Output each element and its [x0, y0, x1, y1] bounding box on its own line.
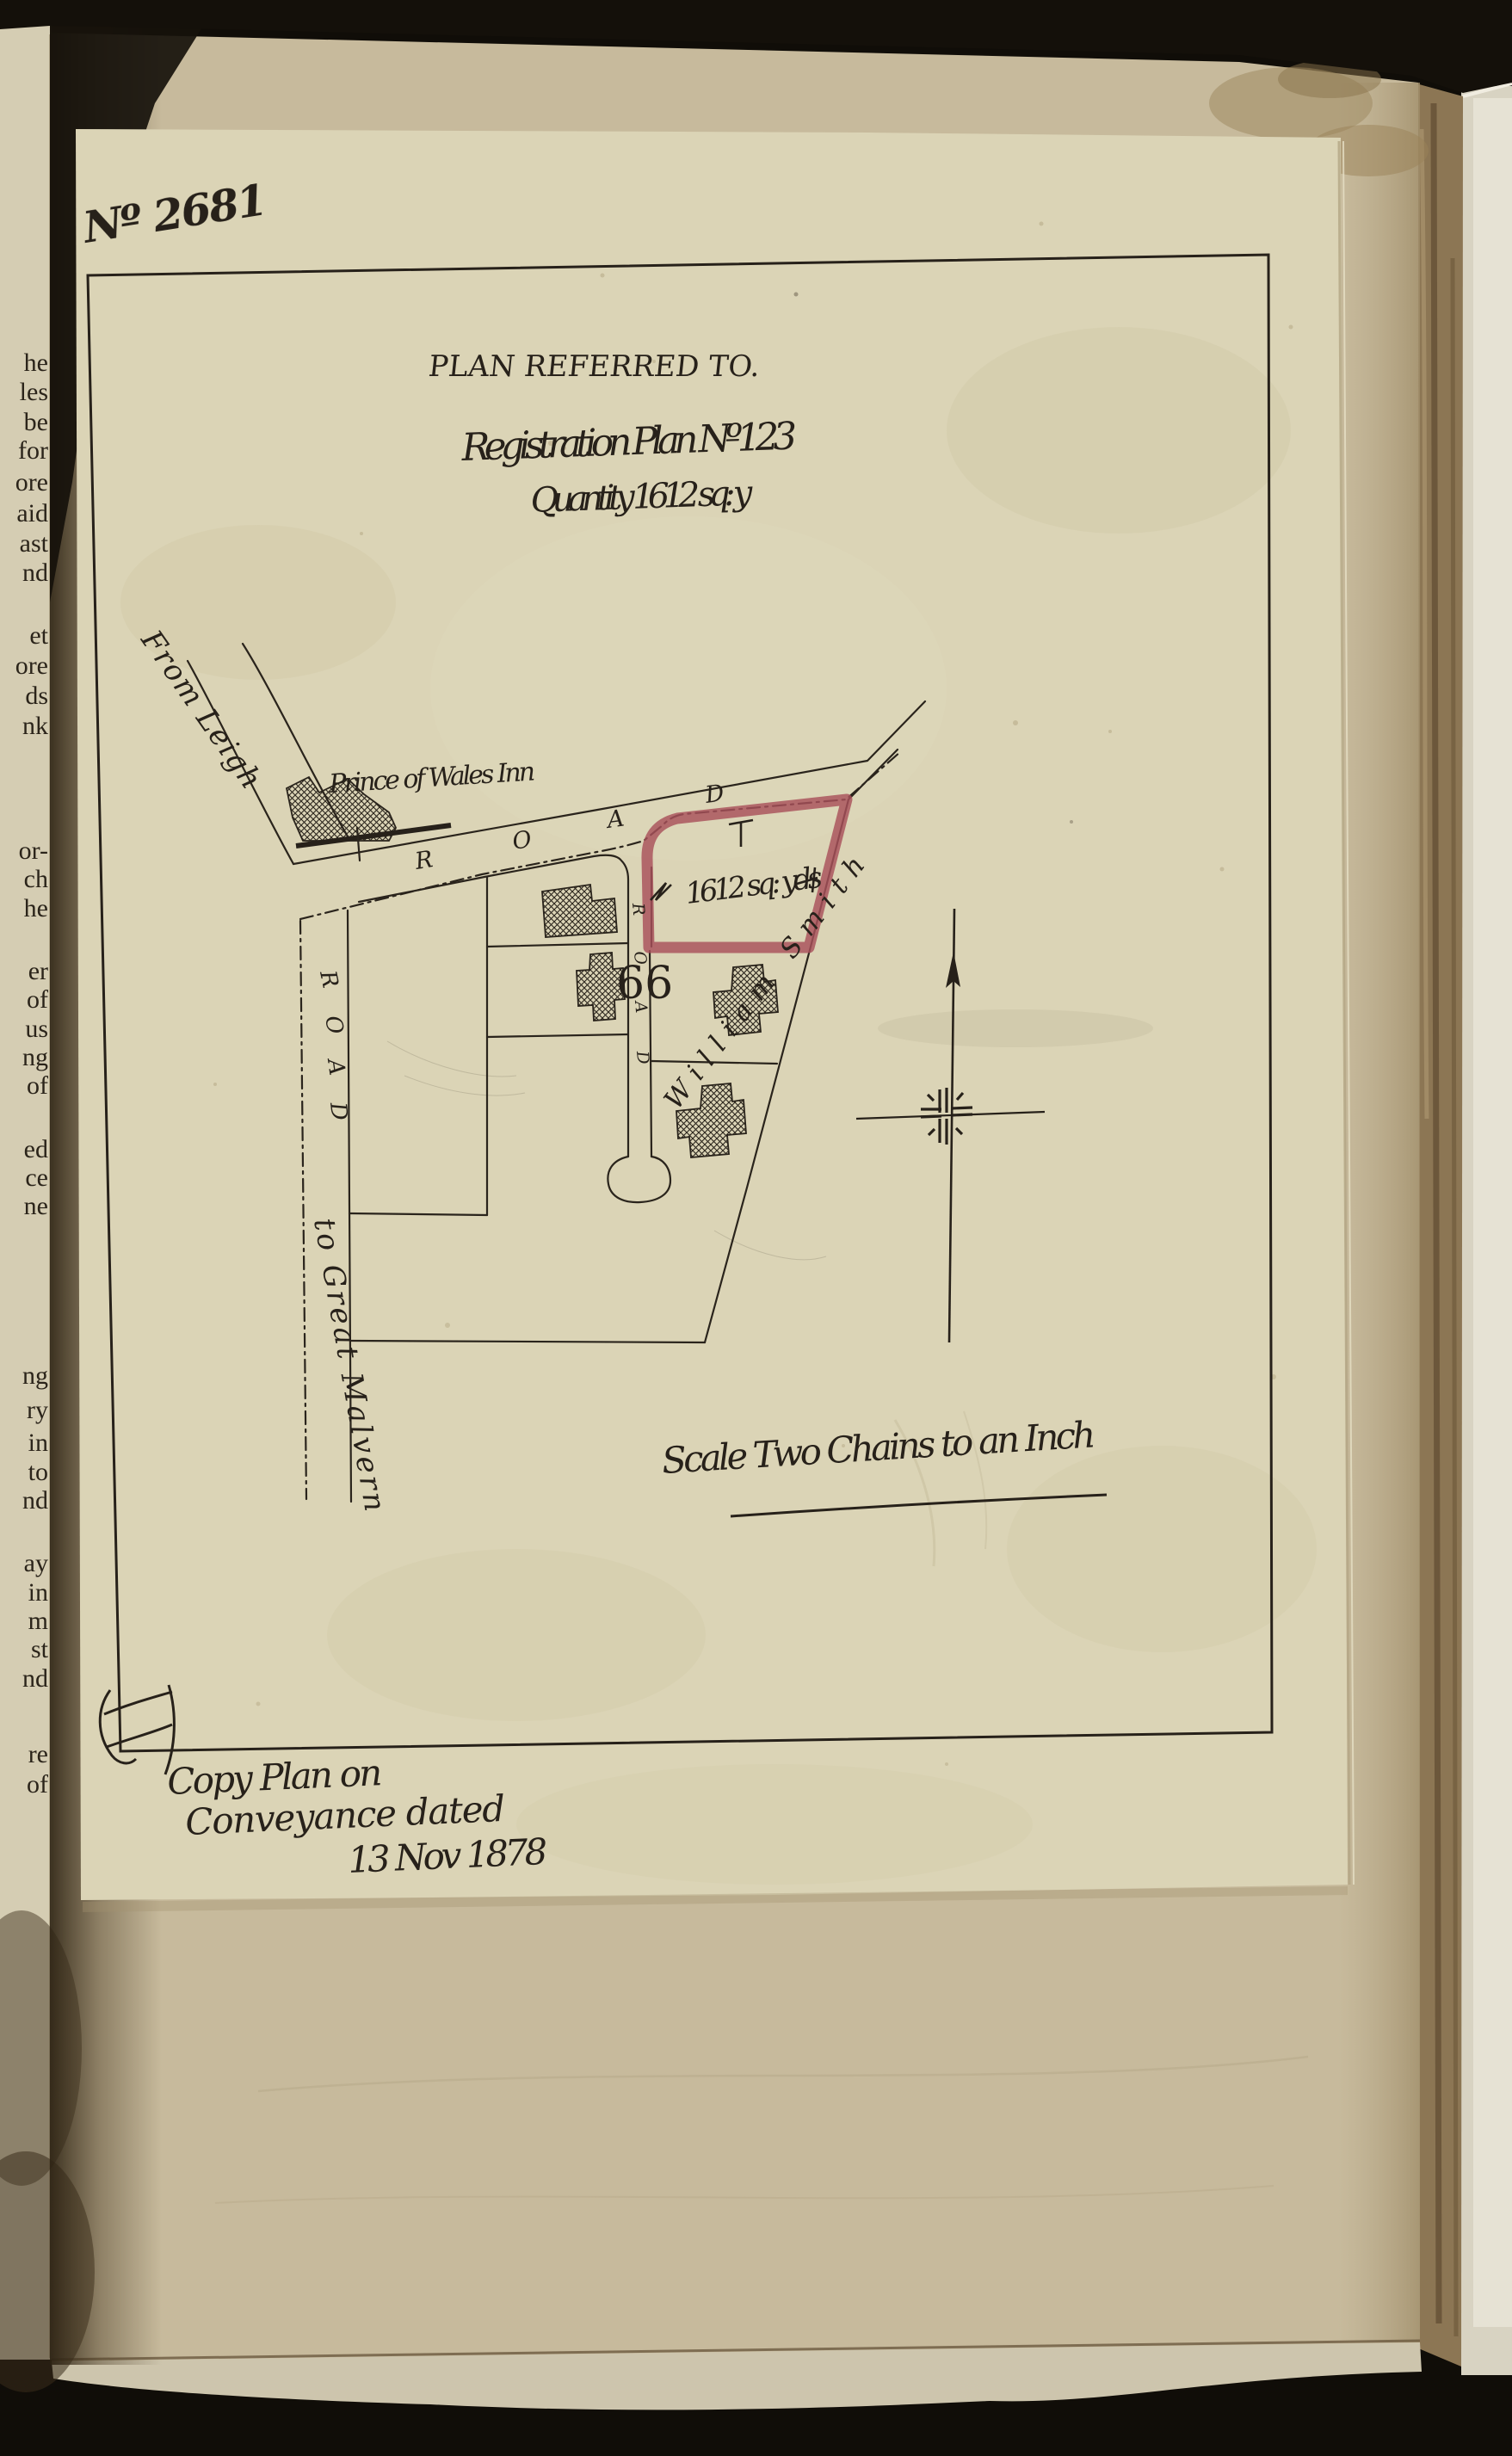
page-edge-text-fragment: of: [0, 1772, 48, 1798]
page-edge-text-fragment: of: [0, 1073, 48, 1099]
page-edge-text-fragment: ds: [0, 683, 48, 709]
page-edge-text-fragment: ry: [0, 1398, 48, 1423]
page-edge-text-fragment: m: [0, 1608, 48, 1634]
road-letter: D: [703, 780, 726, 809]
adjacent-page-text-column: helesbefororeaidastndetoredsnkor-chheero…: [0, 0, 50, 2456]
page-edge-text-fragment: be: [0, 410, 48, 435]
page-edge-text-fragment: ay: [0, 1551, 48, 1577]
page-edge-text-fragment: ce: [0, 1165, 48, 1191]
page-edge-text-fragment: nd: [0, 560, 48, 586]
page-edge-text-fragment: les: [0, 380, 48, 405]
page-edge-text-fragment: nk: [0, 713, 48, 739]
page-edge-text-fragment: of: [0, 987, 48, 1013]
page-edge-text-fragment: aid: [0, 501, 48, 527]
scanned-deed-page: helesbefororeaidastndetoredsnkor-chheero…: [0, 0, 1512, 2456]
page-edge-text-fragment: for: [0, 438, 48, 464]
page-edge-text-fragment: ng: [0, 1363, 48, 1389]
page-edge-text-fragment: nd: [0, 1488, 48, 1514]
conveyance-note-line3: 13 Nov 1878: [347, 1830, 548, 1881]
page-edge-text-fragment: in: [0, 1430, 48, 1456]
plan-sheet: [76, 129, 1354, 1912]
page-edge-text-fragment: et: [0, 623, 48, 649]
page-edge-text-fragment: st: [0, 1637, 48, 1663]
page-edge-text-fragment: ed: [0, 1137, 48, 1163]
road-letter: D: [324, 1101, 352, 1122]
page-edge-text-fragment: or-: [0, 838, 48, 864]
page-edge-text-fragment: us: [0, 1016, 48, 1042]
quantity-line: Quantity 1612 sq: y: [530, 473, 755, 521]
page-edge-text-fragment: he: [0, 350, 48, 376]
plan-title: PLAN REFERRED TO.: [427, 349, 762, 384]
page-edge-text-fragment: nd: [0, 1666, 48, 1692]
page-edge-text-fragment: ore: [0, 470, 48, 496]
page-edge-text-fragment: ne: [0, 1194, 48, 1219]
page-edge-text-fragment: er: [0, 959, 48, 984]
page-edge-text-fragment: ast: [0, 531, 48, 557]
road-letter: D: [633, 1050, 652, 1065]
parcel-number: 66: [616, 958, 673, 1009]
page-edge-text-fragment: ore: [0, 653, 48, 679]
underlying-pages-edge: [1461, 83, 1512, 2375]
page-edge-text-fragment: ng: [0, 1045, 48, 1071]
scan-artwork: Nº 2681 PLAN REFERRED TO. Registration P…: [0, 0, 1512, 2456]
page-edge-text-fragment: ch: [0, 867, 48, 892]
page-edge-text-fragment: he: [0, 896, 48, 922]
page-edge-text-fragment: re: [0, 1742, 48, 1768]
ink-bleedthrough: [878, 1009, 1153, 1047]
page-edge-text-fragment: in: [0, 1580, 48, 1606]
road-letter: R: [628, 902, 648, 916]
torn-page-edge: [1413, 83, 1463, 2367]
page-edge-text-fragment: to: [0, 1459, 48, 1485]
